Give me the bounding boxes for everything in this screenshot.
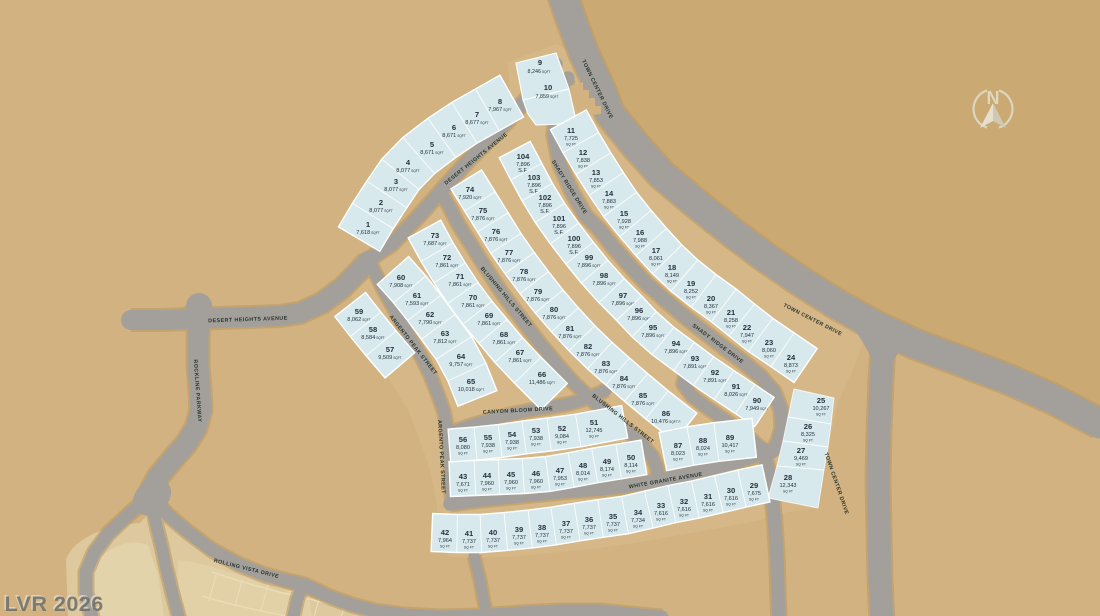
- svg-text:8,014: 8,014: [576, 471, 590, 477]
- svg-text:7,896: 7,896: [552, 224, 566, 230]
- svg-text:25: 25: [817, 396, 826, 405]
- svg-text:7,616: 7,616: [701, 502, 715, 508]
- svg-text:7,896: 7,896: [516, 162, 530, 168]
- svg-text:SQ FT: SQ FT: [726, 503, 736, 507]
- svg-text:39: 39: [515, 525, 523, 534]
- svg-text:24: 24: [787, 353, 796, 362]
- svg-text:7,616: 7,616: [677, 507, 691, 513]
- svg-text:55: 55: [484, 433, 493, 442]
- svg-text:31: 31: [704, 492, 713, 501]
- svg-text:100: 100: [568, 234, 581, 243]
- svg-text:73: 73: [431, 231, 439, 240]
- svg-text:SQ FT: SQ FT: [786, 370, 796, 374]
- svg-text:52: 52: [558, 424, 566, 433]
- svg-text:7,960: 7,960: [529, 479, 543, 485]
- svg-text:SQ FT: SQ FT: [604, 206, 614, 210]
- svg-text:87: 87: [674, 441, 682, 450]
- svg-text:7,838: 7,838: [576, 158, 590, 164]
- svg-text:68: 68: [500, 330, 508, 339]
- svg-text:10,267: 10,267: [812, 406, 829, 412]
- svg-text:95: 95: [649, 323, 658, 332]
- svg-text:7,896: 7,896: [567, 244, 581, 250]
- svg-text:7,853: 7,853: [589, 178, 603, 184]
- svg-text:8,325: 8,325: [801, 432, 815, 438]
- svg-text:SQ FT: SQ FT: [686, 296, 696, 300]
- svg-text:SQ FT: SQ FT: [742, 340, 752, 344]
- svg-text:8,174: 8,174: [600, 467, 614, 473]
- svg-text:17: 17: [652, 246, 660, 255]
- svg-text:96: 96: [635, 306, 643, 315]
- svg-text:SQ FT: SQ FT: [667, 280, 677, 284]
- svg-text:41: 41: [465, 529, 474, 538]
- svg-text:7,737: 7,737: [462, 539, 476, 545]
- svg-text:7,616: 7,616: [724, 496, 738, 502]
- svg-text:57: 57: [386, 345, 394, 354]
- svg-text:13: 13: [592, 168, 600, 177]
- svg-text:SQ FT: SQ FT: [589, 435, 599, 439]
- svg-text:66: 66: [538, 370, 546, 379]
- svg-text:9: 9: [538, 58, 542, 67]
- svg-text:80: 80: [550, 305, 558, 314]
- svg-text:16: 16: [636, 228, 644, 237]
- svg-text:91: 91: [732, 382, 741, 391]
- svg-text:32: 32: [680, 497, 688, 506]
- svg-text:SQ FT: SQ FT: [608, 529, 618, 533]
- svg-text:19: 19: [687, 279, 695, 288]
- svg-text:7: 7: [475, 110, 479, 119]
- svg-text:SQ FT: SQ FT: [557, 441, 567, 445]
- svg-text:94: 94: [672, 339, 681, 348]
- svg-text:8,114: 8,114: [624, 463, 638, 469]
- svg-text:7,938: 7,938: [505, 440, 519, 446]
- svg-text:18: 18: [668, 263, 676, 272]
- svg-text:7,616: 7,616: [654, 511, 668, 517]
- svg-text:SQ FT: SQ FT: [626, 470, 636, 474]
- svg-text:72: 72: [443, 253, 451, 262]
- svg-text:8,024: 8,024: [696, 446, 710, 452]
- svg-text:61: 61: [413, 291, 422, 300]
- svg-text:SQ FT: SQ FT: [656, 518, 666, 522]
- svg-text:SQ FT: SQ FT: [488, 545, 498, 549]
- svg-text:14: 14: [605, 189, 614, 198]
- svg-text:SQ FT: SQ FT: [464, 546, 474, 550]
- svg-text:7,883: 7,883: [602, 199, 616, 205]
- svg-text:3: 3: [394, 177, 398, 186]
- svg-text:49: 49: [603, 457, 611, 466]
- svg-text:47: 47: [556, 466, 564, 475]
- svg-text:82: 82: [584, 342, 592, 351]
- svg-text:69: 69: [485, 311, 493, 320]
- svg-text:LVR 2026: LVR 2026: [5, 592, 104, 616]
- svg-text:SQ FT: SQ FT: [584, 532, 594, 536]
- svg-text:SQ FT: SQ FT: [482, 488, 492, 492]
- svg-text:2: 2: [379, 198, 383, 207]
- svg-text:54: 54: [508, 430, 517, 439]
- svg-text:7,960: 7,960: [504, 480, 518, 486]
- svg-text:SQ FT: SQ FT: [506, 487, 516, 491]
- svg-text:7,928: 7,928: [617, 219, 631, 225]
- svg-text:92: 92: [711, 368, 719, 377]
- svg-text:40: 40: [489, 528, 497, 537]
- svg-text:SQ FT: SQ FT: [651, 263, 661, 267]
- svg-text:67: 67: [516, 348, 524, 357]
- svg-text:11: 11: [567, 126, 576, 135]
- svg-text:SQ FT: SQ FT: [537, 540, 547, 544]
- svg-text:77: 77: [505, 248, 513, 257]
- svg-text:64: 64: [457, 352, 466, 361]
- svg-text:23: 23: [765, 338, 773, 347]
- svg-text:74: 74: [466, 185, 475, 194]
- svg-text:SQ FT: SQ FT: [440, 545, 450, 549]
- svg-text:27: 27: [797, 446, 805, 455]
- svg-text:SQ FT: SQ FT: [764, 355, 774, 359]
- svg-text:SQ FT: SQ FT: [749, 498, 759, 502]
- svg-text:SQ FT: SQ FT: [531, 443, 541, 447]
- svg-text:10,417: 10,417: [721, 443, 738, 449]
- svg-text:78: 78: [520, 267, 528, 276]
- svg-text:81: 81: [566, 324, 575, 333]
- svg-text:SQ FT: SQ FT: [591, 185, 601, 189]
- svg-text:8: 8: [498, 97, 502, 106]
- svg-text:8,873: 8,873: [784, 363, 798, 369]
- svg-text:SQ FT: SQ FT: [507, 447, 517, 451]
- svg-text:8,252: 8,252: [684, 289, 698, 295]
- svg-text:102: 102: [539, 193, 552, 202]
- svg-text:101: 101: [553, 214, 566, 223]
- svg-text:21: 21: [727, 308, 736, 317]
- svg-text:7,737: 7,737: [512, 535, 526, 541]
- svg-text:63: 63: [441, 329, 449, 338]
- svg-text:84: 84: [620, 374, 629, 383]
- svg-text:7,737: 7,737: [486, 538, 500, 544]
- svg-text:8,080: 8,080: [456, 445, 470, 451]
- svg-text:30: 30: [727, 486, 735, 495]
- svg-text:SQ FT: SQ FT: [635, 245, 645, 249]
- svg-text:7,737: 7,737: [582, 525, 596, 531]
- svg-text:93: 93: [691, 354, 699, 363]
- svg-text:20: 20: [707, 294, 715, 303]
- svg-text:51: 51: [590, 418, 599, 427]
- svg-text:104: 104: [517, 152, 530, 161]
- svg-text:SQ FT: SQ FT: [514, 542, 524, 546]
- svg-text:99: 99: [585, 253, 593, 262]
- svg-text:35: 35: [609, 512, 618, 521]
- svg-text:12,745: 12,745: [585, 428, 602, 434]
- svg-text:7,988: 7,988: [633, 238, 647, 244]
- svg-text:59: 59: [355, 307, 363, 316]
- svg-text:8,367: 8,367: [704, 304, 718, 310]
- svg-text:43: 43: [459, 472, 467, 481]
- svg-text:SQ FT: SQ FT: [706, 311, 716, 315]
- svg-text:7,938: 7,938: [529, 436, 543, 442]
- svg-text:34: 34: [634, 508, 643, 517]
- svg-text:90: 90: [753, 396, 761, 405]
- svg-text:53: 53: [532, 426, 540, 435]
- svg-text:SQ FT: SQ FT: [783, 490, 793, 494]
- svg-text:10: 10: [544, 83, 552, 92]
- svg-text:45: 45: [507, 470, 516, 479]
- svg-text:22: 22: [743, 323, 751, 332]
- svg-text:42: 42: [441, 528, 449, 537]
- svg-text:76: 76: [492, 227, 500, 236]
- svg-text:44: 44: [483, 471, 492, 480]
- svg-text:7,896: 7,896: [538, 203, 552, 209]
- svg-text:8,023: 8,023: [671, 451, 685, 457]
- svg-text:SQ FT: SQ FT: [458, 452, 468, 456]
- svg-text:26: 26: [804, 422, 812, 431]
- svg-text:7,737: 7,737: [606, 522, 620, 528]
- svg-text:86: 86: [662, 409, 670, 418]
- svg-text:60: 60: [397, 273, 405, 282]
- svg-text:9,469: 9,469: [794, 456, 808, 462]
- svg-text:79: 79: [534, 287, 542, 296]
- svg-text:62: 62: [426, 310, 434, 319]
- svg-text:7,737: 7,737: [559, 529, 573, 535]
- svg-text:15: 15: [620, 209, 629, 218]
- svg-text:38: 38: [538, 523, 546, 532]
- svg-text:7,938: 7,938: [481, 443, 495, 449]
- svg-text:98: 98: [600, 271, 608, 280]
- svg-text:7,896: 7,896: [527, 183, 541, 189]
- svg-text:71: 71: [456, 272, 465, 281]
- svg-text:83: 83: [602, 359, 610, 368]
- svg-text:7,953: 7,953: [553, 476, 567, 482]
- svg-text:29: 29: [750, 481, 758, 490]
- svg-text:SQ FT: SQ FT: [458, 489, 468, 493]
- svg-text:12: 12: [579, 148, 587, 157]
- svg-text:SQ FT: SQ FT: [726, 325, 736, 329]
- svg-text:7,960: 7,960: [480, 481, 494, 487]
- svg-text:SQ FT: SQ FT: [561, 536, 571, 540]
- svg-text:33: 33: [657, 501, 665, 510]
- svg-text:103: 103: [528, 173, 541, 182]
- svg-text:65: 65: [467, 377, 476, 386]
- svg-text:75: 75: [479, 206, 488, 215]
- svg-text:8,060: 8,060: [762, 348, 776, 354]
- svg-text:46: 46: [532, 469, 540, 478]
- svg-text:56: 56: [459, 435, 467, 444]
- svg-text:SQ FT: SQ FT: [633, 525, 643, 529]
- svg-text:36: 36: [585, 515, 593, 524]
- svg-text:SQ FT: SQ FT: [602, 474, 612, 478]
- svg-text:7,947: 7,947: [740, 333, 754, 339]
- svg-text:9,084: 9,084: [555, 434, 569, 440]
- svg-text:7,964: 7,964: [438, 538, 452, 544]
- svg-text:58: 58: [369, 325, 377, 334]
- svg-text:37: 37: [562, 519, 570, 528]
- svg-text:SQ FT: SQ FT: [619, 226, 629, 230]
- svg-text:SQ FT: SQ FT: [698, 453, 708, 457]
- svg-text:85: 85: [639, 391, 648, 400]
- svg-text:89: 89: [726, 433, 734, 442]
- svg-text:12,343: 12,343: [779, 483, 796, 489]
- svg-text:SQ FT: SQ FT: [703, 509, 713, 513]
- svg-text:SQ FT: SQ FT: [673, 458, 683, 462]
- svg-text:SQ FT: SQ FT: [803, 439, 813, 443]
- svg-text:6: 6: [452, 123, 456, 132]
- svg-text:70: 70: [469, 293, 477, 302]
- svg-text:SQ FT: SQ FT: [679, 514, 689, 518]
- svg-text:88: 88: [699, 436, 707, 445]
- svg-text:7,675: 7,675: [747, 491, 761, 497]
- svg-text:SQ FT: SQ FT: [555, 483, 565, 487]
- svg-text:SQ FT: SQ FT: [531, 486, 541, 490]
- svg-text:SQ FT: SQ FT: [483, 450, 493, 454]
- svg-text:8,149: 8,149: [665, 273, 679, 279]
- svg-text:7,725: 7,725: [564, 136, 578, 142]
- svg-text:7,734: 7,734: [631, 518, 645, 524]
- svg-text:7,671: 7,671: [456, 482, 470, 488]
- svg-text:8,061: 8,061: [649, 256, 663, 262]
- svg-text:48: 48: [579, 461, 587, 470]
- svg-text:8,258: 8,258: [724, 318, 738, 324]
- svg-text:7,737: 7,737: [535, 533, 549, 539]
- svg-text:28: 28: [784, 473, 792, 482]
- svg-text:SQ FT: SQ FT: [725, 450, 735, 454]
- svg-text:SQ FT: SQ FT: [816, 413, 826, 417]
- svg-text:SQ FT: SQ FT: [578, 478, 588, 482]
- svg-text:97: 97: [619, 291, 627, 300]
- svg-text:SQ FT: SQ FT: [796, 463, 806, 467]
- svg-text:50: 50: [627, 453, 635, 462]
